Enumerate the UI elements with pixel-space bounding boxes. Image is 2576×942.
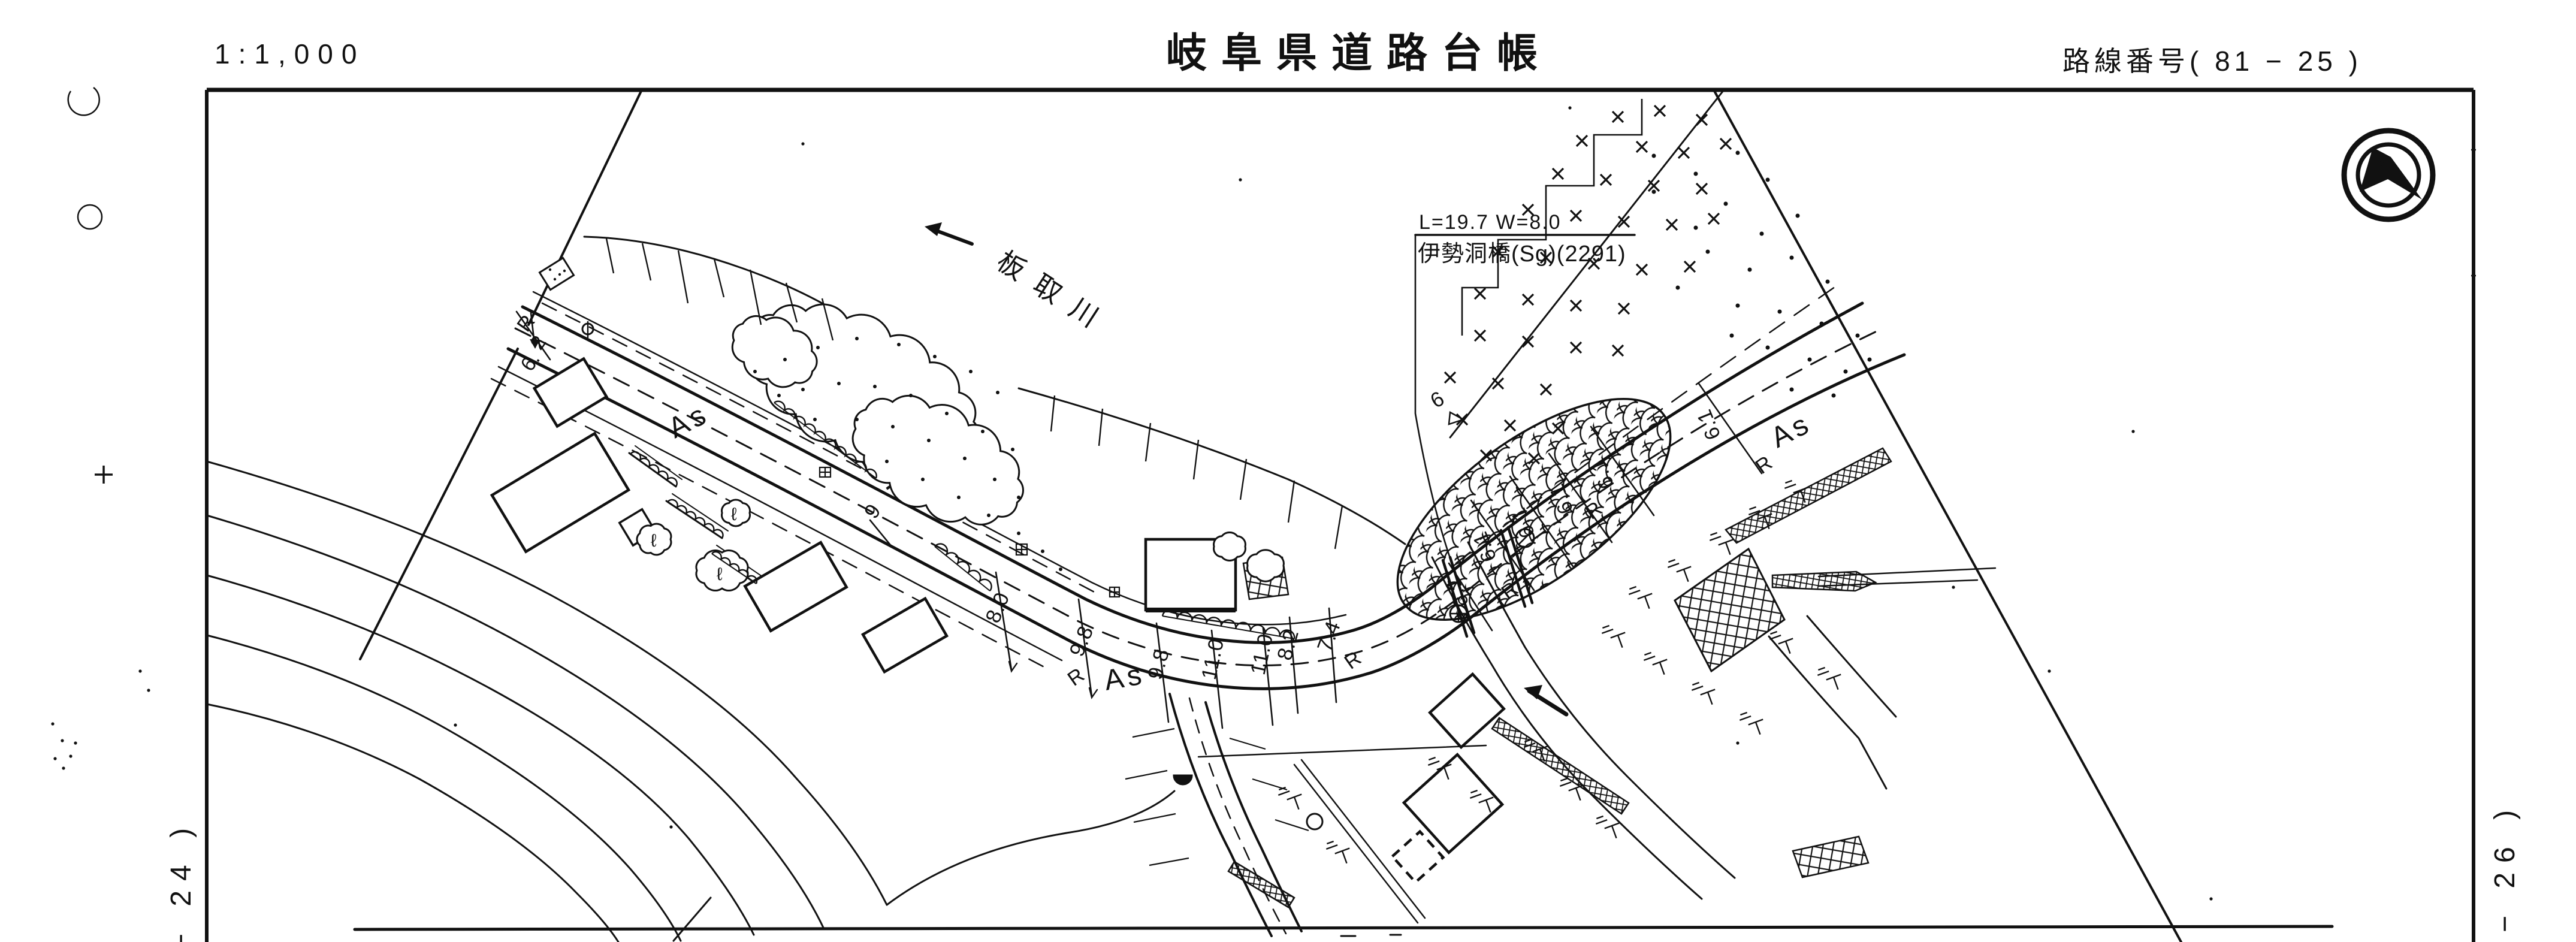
building [1430, 674, 1504, 747]
scan-artifacts [68, 87, 113, 484]
circle-symbol [1307, 814, 1322, 829]
building [492, 433, 629, 551]
left-adjacent-sheet-label: − 24 ) [165, 819, 197, 942]
page-title: 岐阜県道路台帳 [1166, 31, 1552, 76]
scale-label: 1:1,000 [215, 38, 365, 70]
header: 1:1,000 岐阜県道路台帳 路線番号( 81 − 25 ) [215, 31, 2362, 77]
building [745, 542, 846, 630]
field-line [1198, 745, 1486, 757]
wall-strip [1228, 862, 1294, 907]
building [863, 599, 947, 672]
right-adjacent-sheet-label: − 26 ) [2489, 801, 2521, 932]
width-value: 8.2 [1273, 627, 1303, 663]
width-value: 9 [860, 499, 886, 523]
station-label: 6. [516, 349, 544, 376]
levee-slope-hatch [1363, 358, 1705, 661]
width-value: 11.0 [1197, 636, 1229, 682]
pavement-label-as: As [1102, 659, 1147, 697]
wall-label: R [1064, 663, 1089, 690]
river-bank-upper [584, 237, 839, 313]
bench-value: 6 [1427, 387, 1449, 413]
width-value: 7.4 [1313, 618, 1345, 655]
map-canvas: 1:1,000 岐阜県道路台帳 路線番号( 81 − 25 ) − 24 ) −… [0, 0, 2576, 942]
width-value: 6.1 [1692, 406, 1726, 443]
tree-symbol: ℓ [731, 505, 737, 524]
well-symbol [1174, 775, 1192, 784]
cut-line-left [360, 90, 642, 659]
wall-label: R [1751, 451, 1777, 478]
bridge-dimension-label: L=19.7 W=8.0 [1419, 211, 1562, 234]
compass-north-arrow-icon [2344, 131, 2433, 219]
decorative-marks [51, 99, 2212, 901]
wall-strip [1772, 572, 1876, 591]
wall-strip [1492, 718, 1629, 814]
station-label: 2 [526, 331, 551, 354]
wall-strip [1726, 448, 1891, 543]
bottom-rule [355, 926, 2332, 929]
ditch [1294, 760, 1425, 923]
bridge-name-label: 伊勢洞橋(Sg)(2291) [1418, 241, 1626, 267]
pavement-label-as: As [663, 398, 714, 445]
buildings [492, 258, 1504, 882]
river-bank-lower [1019, 388, 1405, 544]
road-ledger-sheet: { "sheet": { "scale_label": "1:1,000", "… [0, 0, 2576, 942]
building [539, 258, 573, 289]
river-name-label: 板取川 [992, 245, 1117, 342]
slope-hatch [1793, 837, 1868, 877]
route-number-label: 路線番号( 81 − 25 ) [2062, 46, 2362, 77]
tree-symbol: ℓ [651, 531, 657, 551]
tree-symbol: ℓ [717, 564, 723, 584]
